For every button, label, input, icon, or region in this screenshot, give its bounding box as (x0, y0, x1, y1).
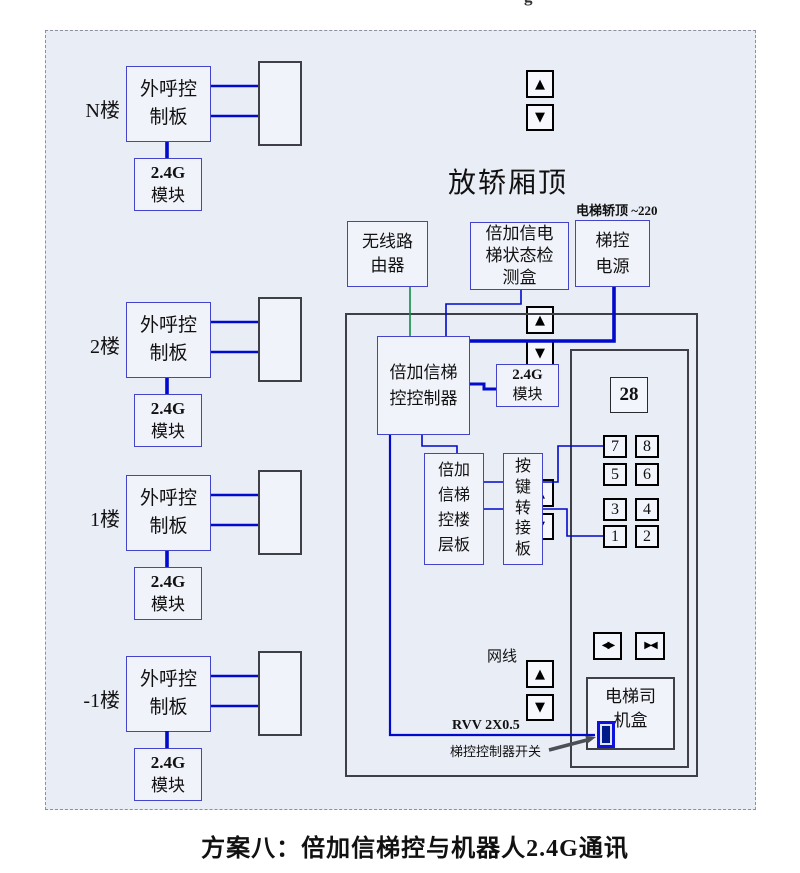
elevator-controller-box: 倍加信梯控控制器 (377, 336, 470, 435)
switch-core (602, 726, 610, 743)
module-2-4g: 2.4G 模块 (134, 567, 202, 620)
module-2-4g: 2.4G 模块 (134, 158, 202, 211)
floor-button-3: 3 (603, 498, 627, 521)
clipped-title-fragment: g (524, 0, 533, 7)
floor-button-1: 1 (603, 525, 627, 548)
floor-button-4: 4 (635, 498, 659, 521)
module-line1: 2.4G (151, 571, 185, 594)
controller-switch (597, 721, 615, 748)
down-button: ▼ (526, 104, 554, 131)
floor-button-6: 6 (635, 463, 659, 486)
module-line2: 模块 (151, 775, 185, 798)
hall-button-panel: ▲ ▼ (258, 61, 302, 146)
floor-button-8: 8 (635, 435, 659, 458)
floor-board-box: 倍加信梯控楼层板 (424, 453, 484, 565)
module-line1: 2.4G (151, 398, 185, 421)
door-close-button: ▶◀ (635, 632, 665, 660)
hall-call-board: 外呼控制板 (126, 66, 211, 142)
controller-module-2-4g: 2.4G 模块 (496, 364, 559, 407)
module-line2: 模块 (151, 594, 185, 617)
floor-label: 2楼 (58, 330, 120, 359)
floor-button-5: 5 (603, 463, 627, 486)
door-open-button: ◀▶ (593, 632, 622, 660)
diagram-caption: 方案八：倍加信梯控与机器人2.4G通讯 (40, 828, 790, 863)
module-2-4g: 2.4G 模块 (134, 394, 202, 447)
module-line1: 2.4G (151, 752, 185, 775)
hall-call-board: 外呼控制板 (126, 475, 211, 551)
power-note: 电梯轿顶 ~220 (576, 200, 658, 219)
hall-button-panel: ▲ ▼ (258, 651, 302, 736)
hall-call-board: 外呼控制板 (126, 656, 211, 732)
module-line1: 2.4G (512, 366, 542, 386)
door-close-icon: ▶◀ (644, 641, 655, 651)
up-button: ▲ (526, 70, 554, 98)
power-supply-box: 梯控电源 (575, 220, 650, 287)
hall-call-board: 外呼控制板 (126, 302, 211, 378)
up-arrow-icon: ▲ (535, 78, 545, 91)
module-2-4g: 2.4G 模块 (134, 748, 202, 801)
module-line2: 模块 (151, 421, 185, 444)
module-line2: 模块 (512, 386, 542, 406)
floor-button-2: 2 (635, 525, 659, 548)
key-adapter-box: 按键转接板 (503, 453, 543, 565)
door-open-icon: ◀▶ (602, 641, 613, 651)
diagram-canvas: g N楼 外呼控制板 ▲ ▼ 2.4G 模块 2楼 外呼控制板 ▲ ▼ 2.4G… (0, 0, 800, 873)
floor-button-7: 7 (603, 435, 627, 458)
floor-label: -1楼 (58, 684, 120, 713)
net-cable-label: 网线 (487, 645, 517, 666)
wireless-router-box: 无线路由器 (347, 221, 428, 287)
car-top-title: 放轿厢顶 (448, 161, 568, 201)
hall-button-panel: ▲ ▼ (258, 470, 302, 555)
status-detector-box: 倍加信电梯状态检测盒 (470, 222, 569, 290)
switch-label: 梯控控制器开关 (450, 741, 541, 760)
hall-button-panel: ▲ ▼ (258, 297, 302, 382)
module-line1: 2.4G (151, 162, 185, 185)
floor-display: 28 (610, 377, 648, 413)
floor-label: N楼 (58, 94, 120, 123)
module-line2: 模块 (151, 185, 185, 208)
floor-label: 1楼 (58, 503, 120, 532)
rvv-cable-label: RVV 2X0.5 (452, 718, 520, 734)
down-arrow-icon: ▼ (535, 111, 545, 124)
